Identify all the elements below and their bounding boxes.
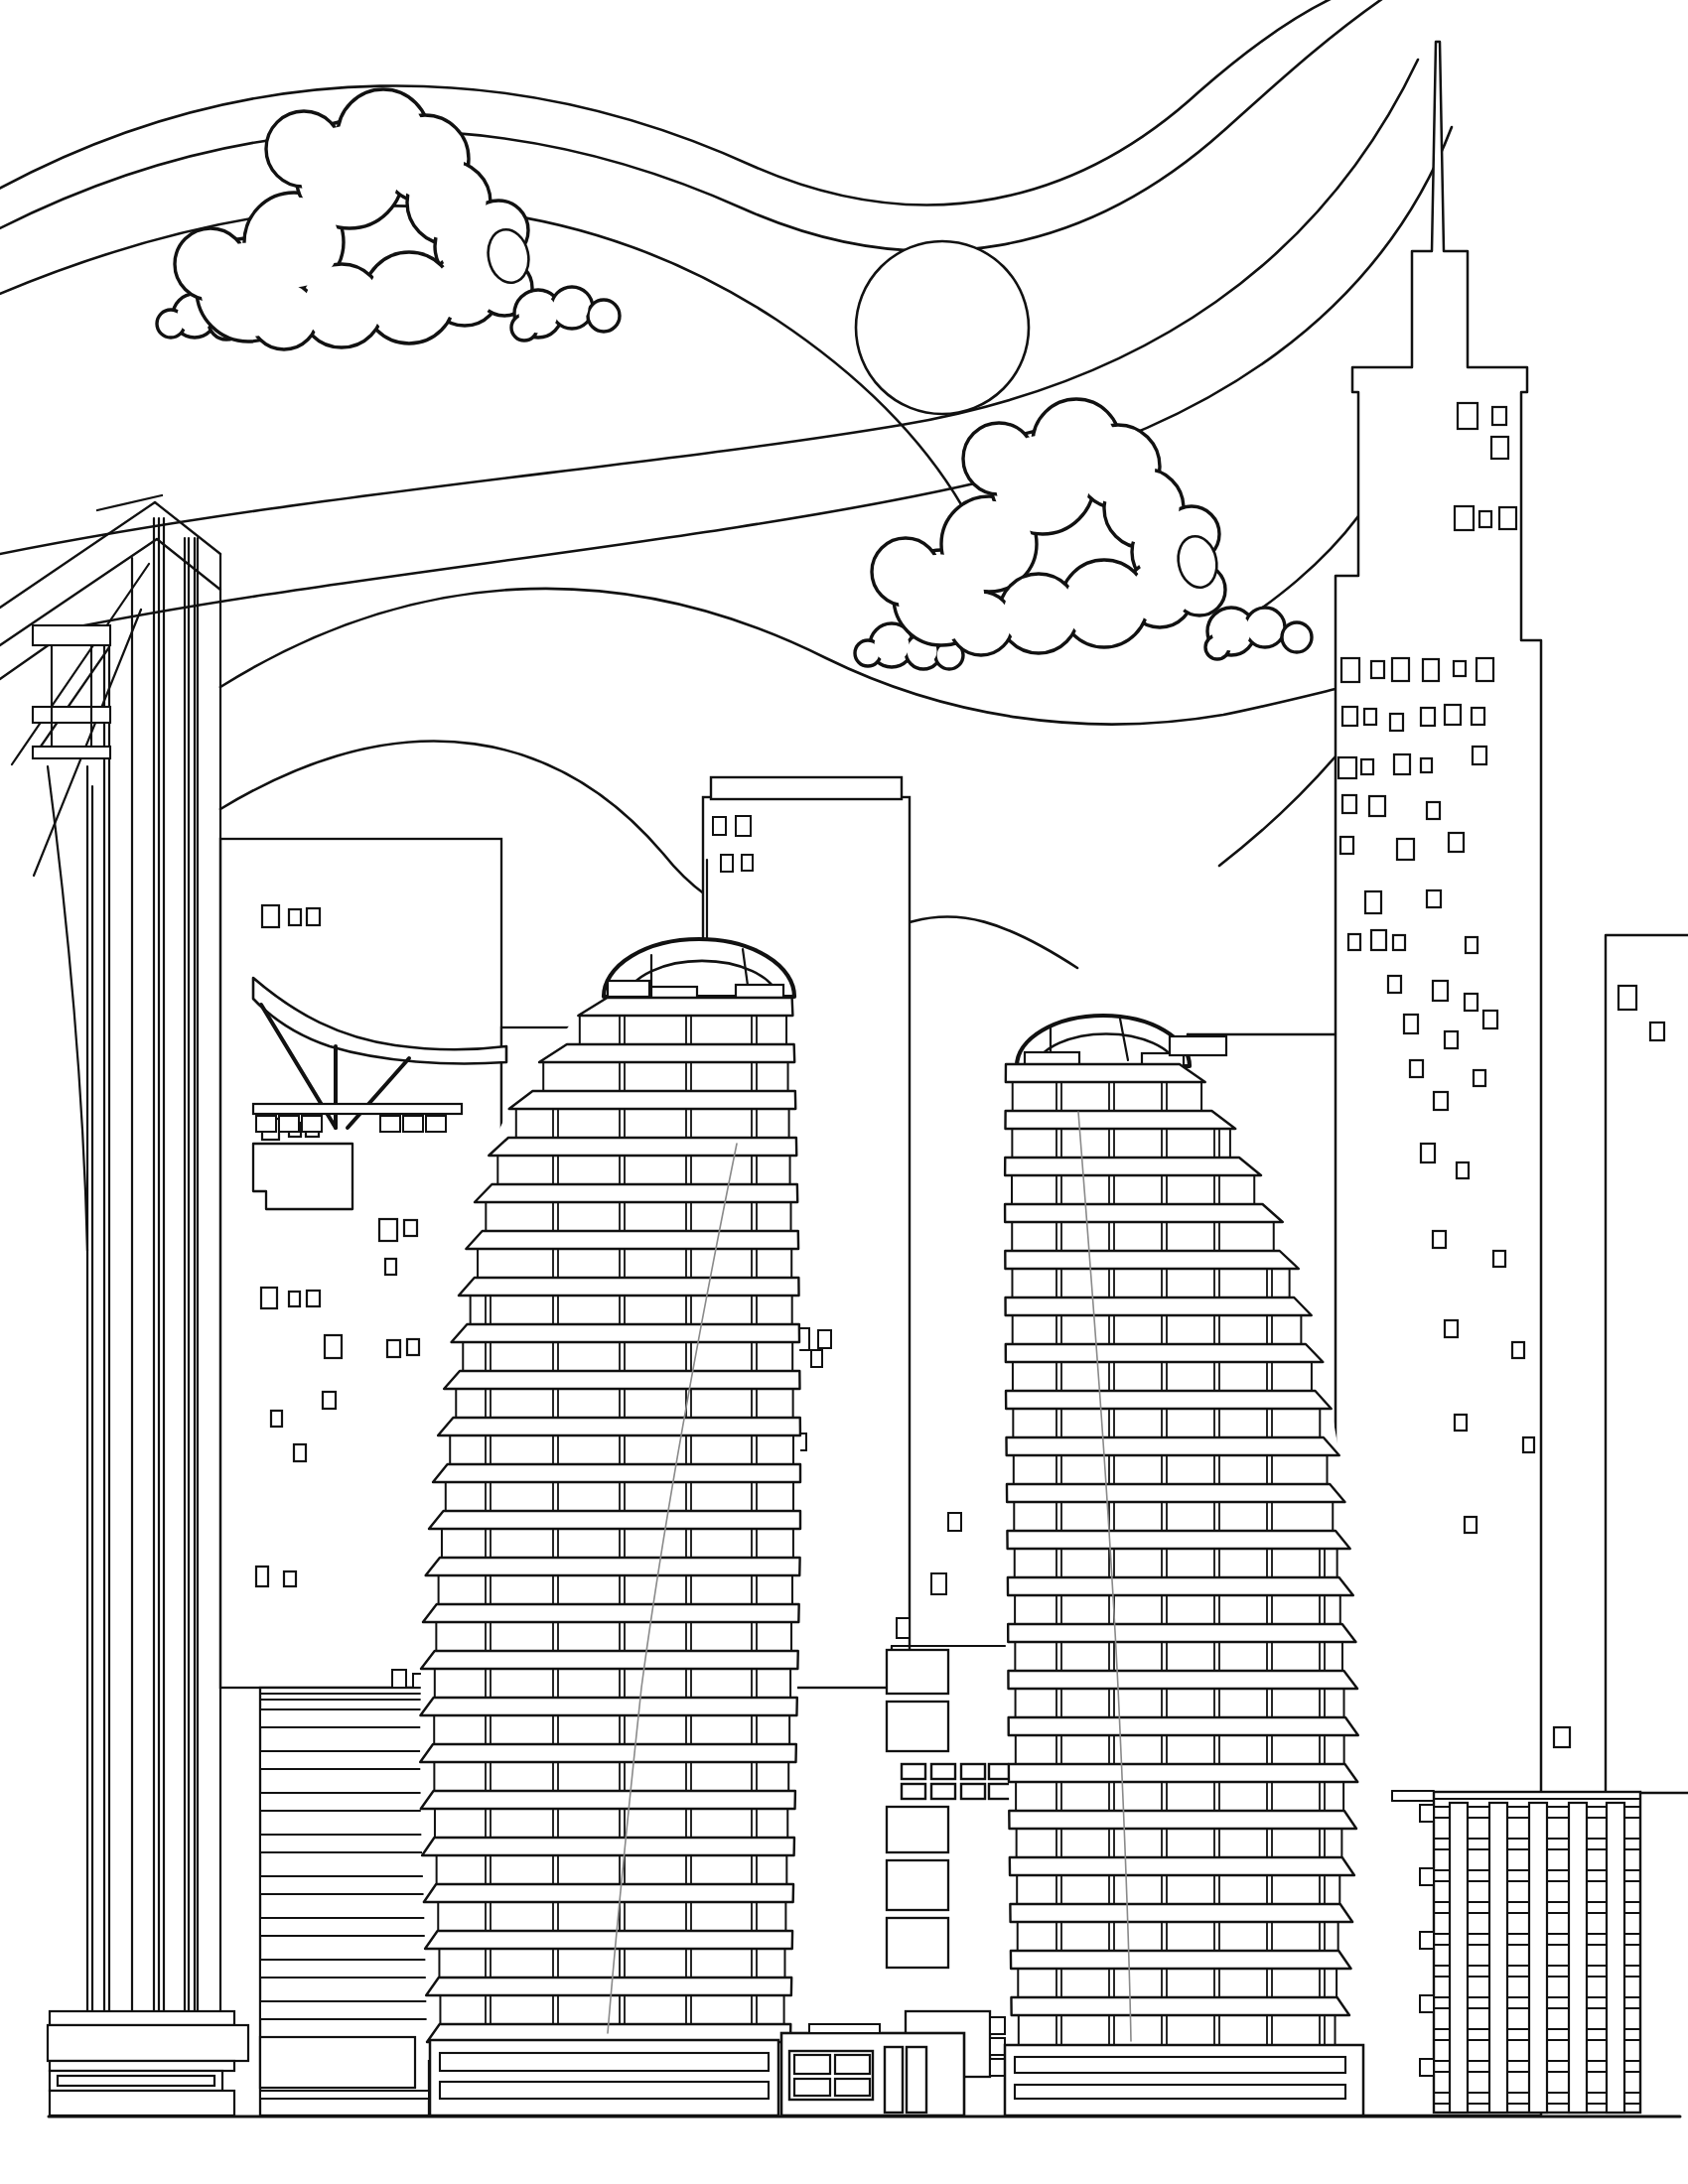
cloud-left — [157, 89, 620, 349]
pavilion — [781, 2024, 964, 2116]
cityscape-line-art: Black and white line-art illustration of… — [0, 0, 1688, 2184]
far-right-building — [1606, 935, 1688, 1793]
cloud-center — [855, 399, 1312, 669]
curved-tower-right — [1005, 1016, 1363, 2116]
coloring-page: Black and white line-art illustration of… — [0, 0, 1688, 2184]
striped-building-left — [260, 1670, 429, 2116]
frame-structure — [0, 495, 248, 2116]
core-building — [887, 1573, 1013, 2077]
sun — [856, 241, 1029, 414]
